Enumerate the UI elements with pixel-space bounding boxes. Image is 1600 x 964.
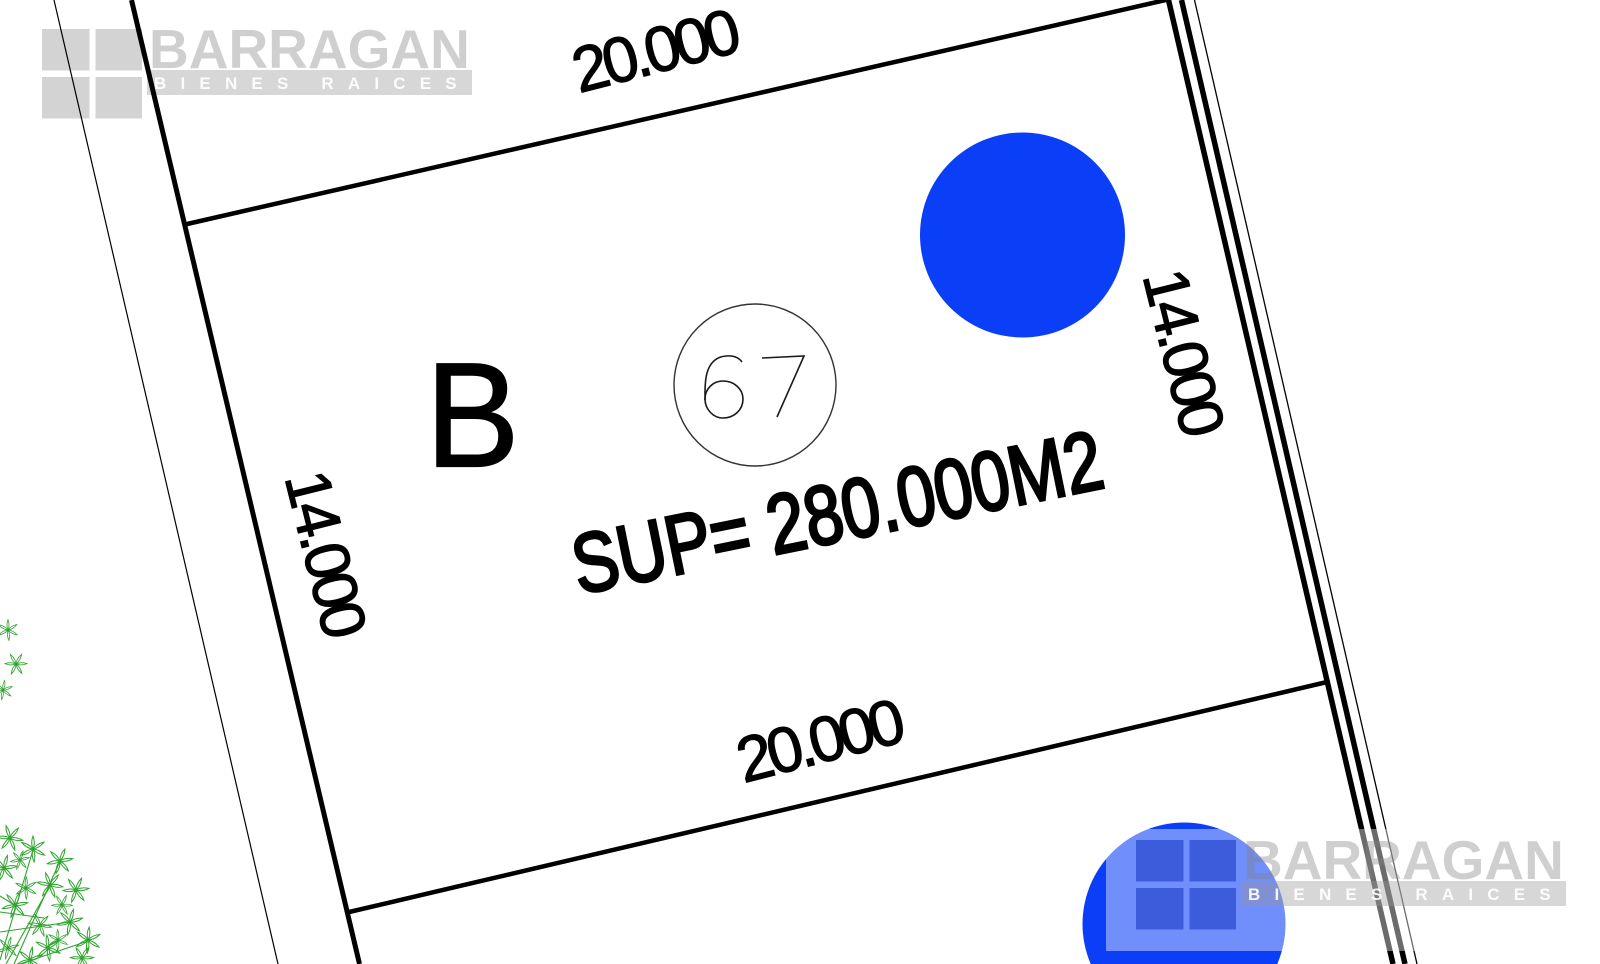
svg-text:B: B [425, 331, 519, 498]
